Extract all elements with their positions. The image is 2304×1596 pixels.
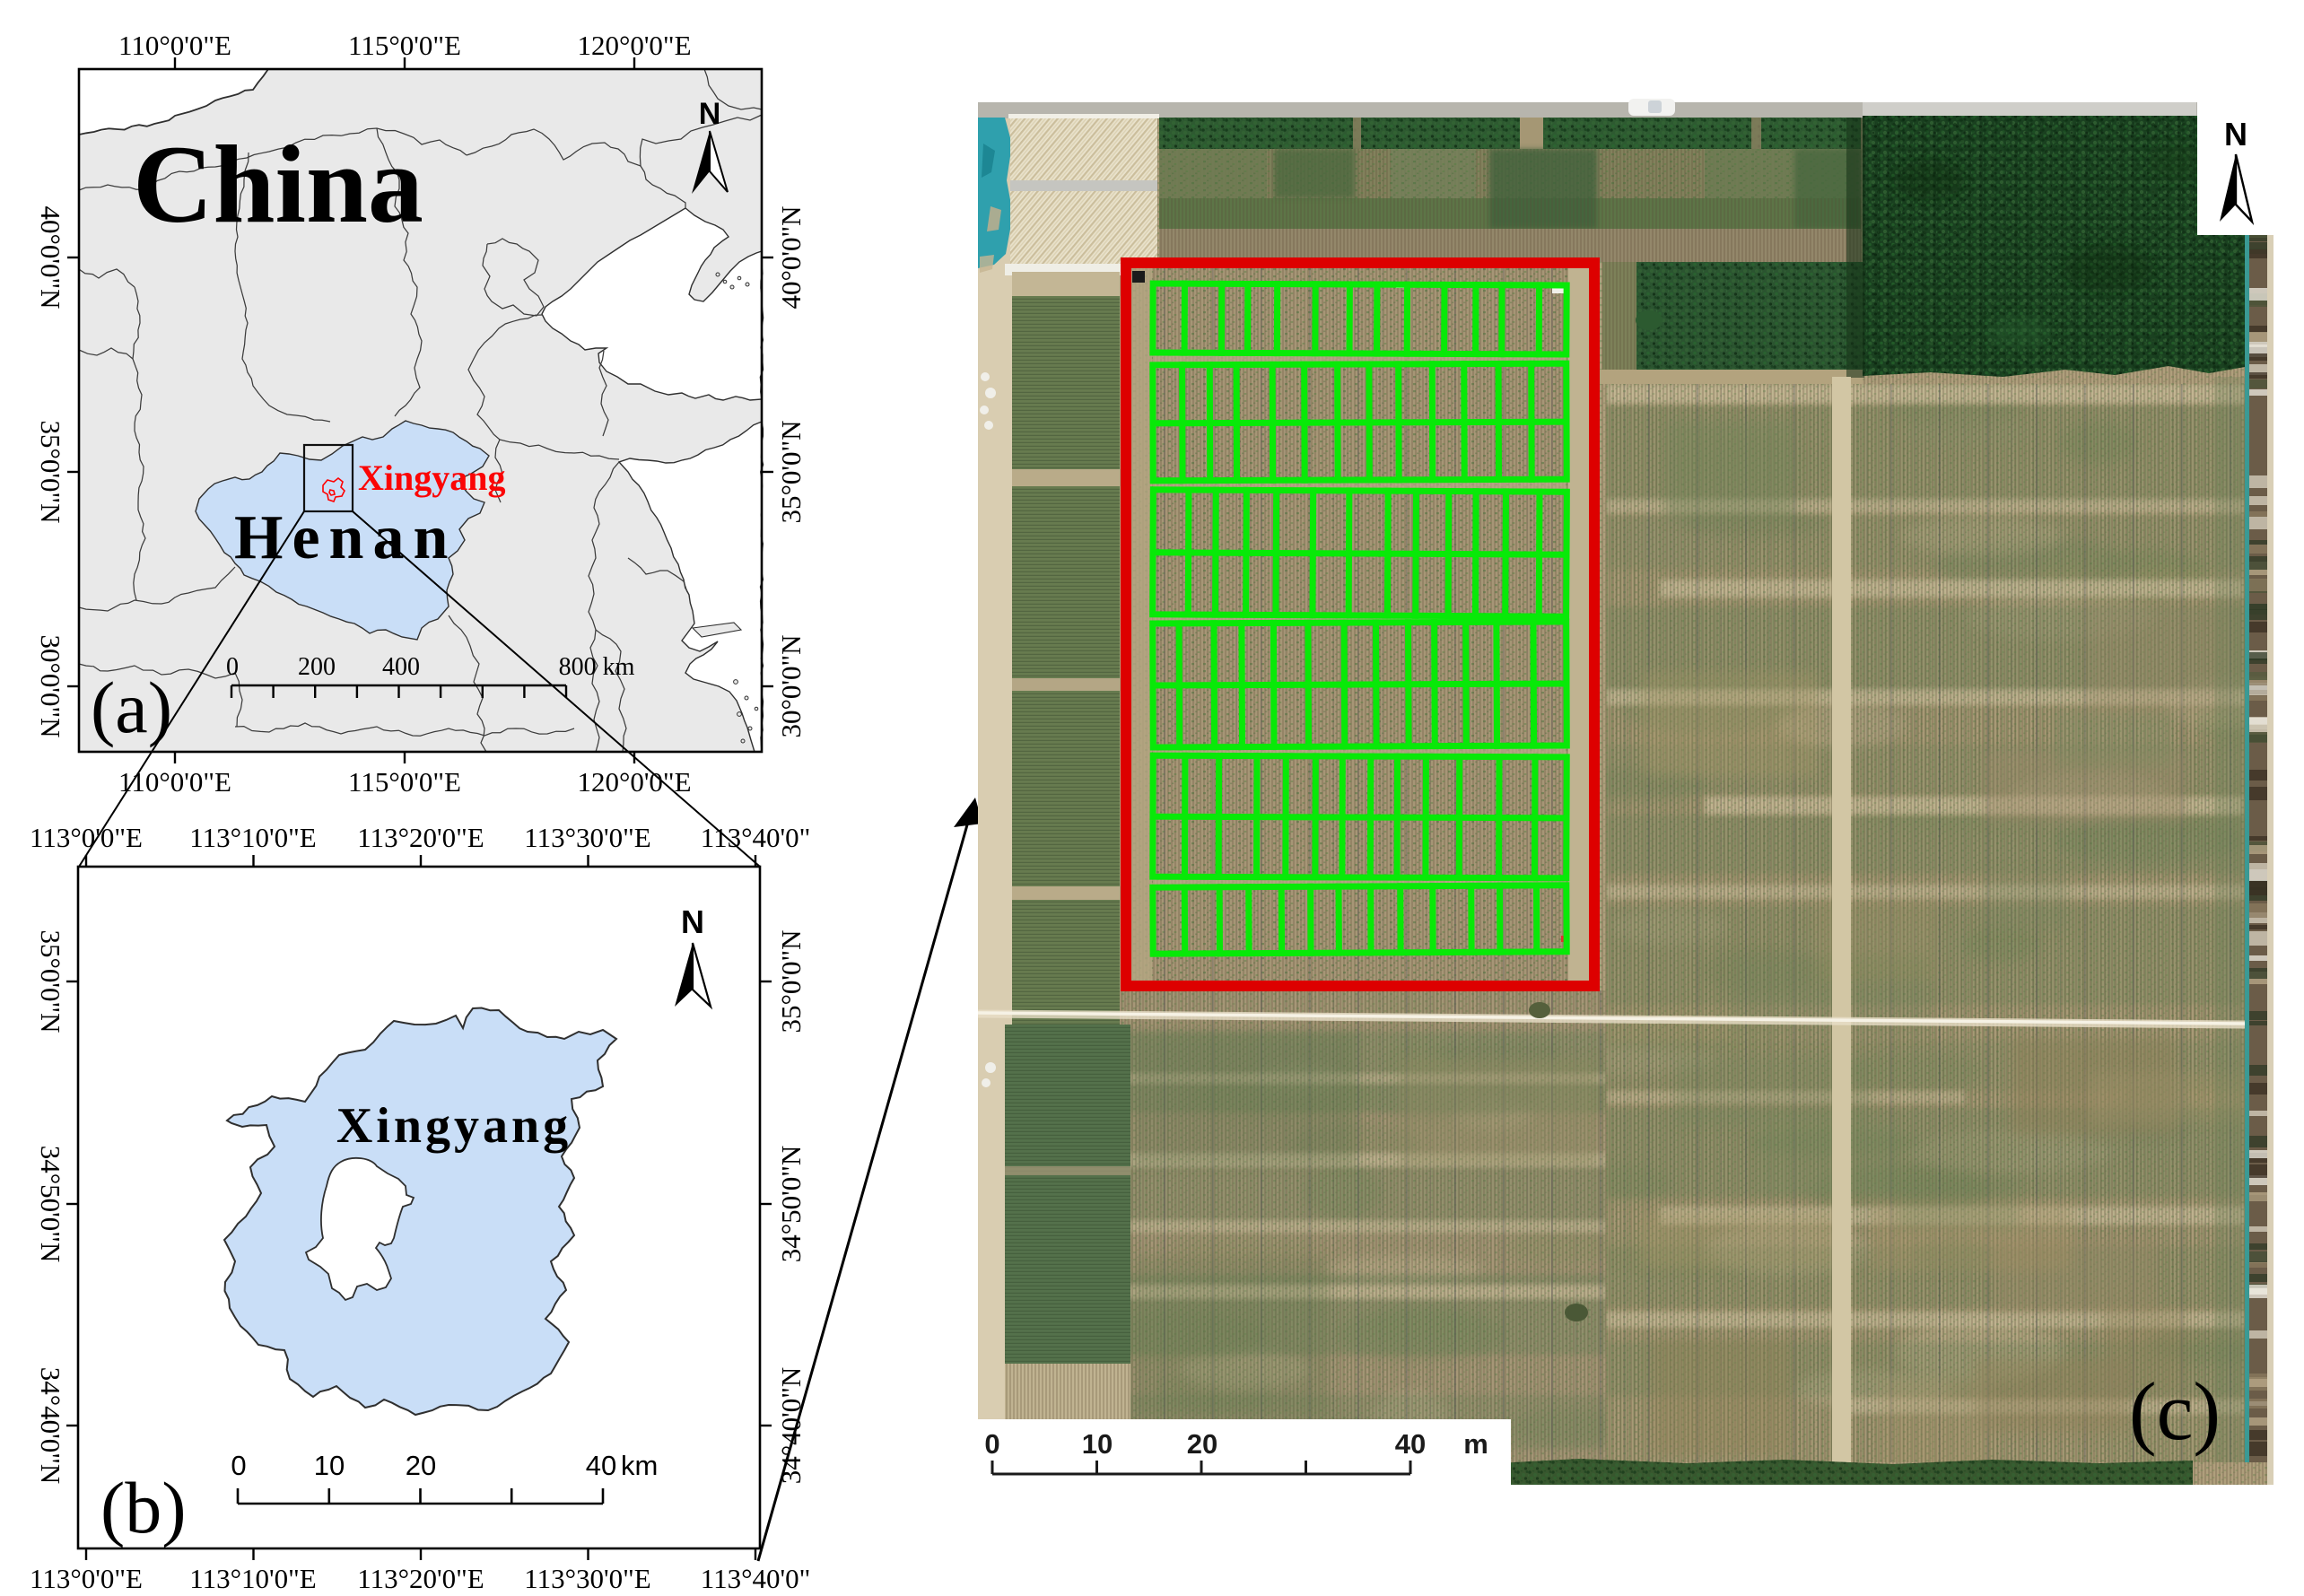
svg-text:30°0'0"N: 30°0'0"N	[35, 634, 66, 737]
svg-text:113°30'0"E: 113°30'0"E	[524, 822, 650, 853]
svg-text:113°20'0"E: 113°20'0"E	[357, 822, 484, 853]
svg-text:113°40'0": 113°40'0"	[701, 1563, 811, 1594]
svg-text:40°0'0"N: 40°0'0"N	[35, 205, 66, 309]
svg-text:35°0'0"N: 35°0'0"N	[35, 929, 66, 1033]
svg-text:110°0'0"E: 110°0'0"E	[118, 30, 231, 61]
svg-text:113°30'0"E: 113°30'0"E	[524, 1563, 650, 1594]
svg-text:35°0'0"N: 35°0'0"N	[35, 420, 66, 523]
svg-text:N: N	[2224, 116, 2247, 153]
svg-text:40: 40	[1395, 1428, 1426, 1460]
svg-text:N: N	[699, 97, 721, 131]
svg-text:113°20'0"E: 113°20'0"E	[357, 1563, 484, 1594]
svg-text:113°40'0": 113°40'0"	[701, 822, 811, 853]
svg-text:34°50'0"N: 34°50'0"N	[35, 1146, 66, 1263]
svg-text:35°0'0"N: 35°0'0"N	[775, 420, 807, 523]
svg-text:(b): (b)	[100, 1467, 187, 1548]
svg-text:110°0'0"E: 110°0'0"E	[118, 766, 231, 798]
svg-text:0: 0	[984, 1428, 999, 1460]
svg-text:20: 20	[1187, 1428, 1217, 1460]
svg-text:(a): (a)	[91, 667, 172, 748]
svg-text:34°50'0"N: 34°50'0"N	[775, 1146, 807, 1263]
svg-text:10: 10	[1082, 1428, 1113, 1460]
svg-text:10: 10	[314, 1450, 345, 1481]
svg-text:115°0'0"E: 115°0'0"E	[348, 766, 461, 798]
svg-text:400: 400	[382, 653, 420, 681]
svg-text:N: N	[681, 903, 704, 940]
svg-text:113°10'0"E: 113°10'0"E	[189, 1563, 316, 1594]
svg-text:113°0'0"E: 113°0'0"E	[30, 1563, 143, 1594]
svg-text:0: 0	[231, 1450, 246, 1481]
svg-text:China: China	[133, 123, 423, 246]
svg-text:113°0'0"E: 113°0'0"E	[30, 822, 143, 853]
svg-text:Xingyang: Xingyang	[358, 458, 506, 498]
svg-text:113°10'0"E: 113°10'0"E	[189, 822, 316, 853]
svg-text:34°40'0"N: 34°40'0"N	[35, 1367, 66, 1485]
svg-text:30°0'0"N: 30°0'0"N	[775, 634, 807, 737]
svg-text:115°0'0"E: 115°0'0"E	[348, 30, 461, 61]
svg-text:Henan: Henan	[234, 503, 457, 572]
svg-text:Xingyang: Xingyang	[336, 1098, 572, 1154]
svg-text:0: 0	[226, 653, 239, 681]
svg-text:200: 200	[298, 653, 336, 681]
svg-text:km: km	[621, 1450, 658, 1481]
svg-text:35°0'0"N: 35°0'0"N	[775, 929, 807, 1033]
svg-text:40°0'0"N: 40°0'0"N	[775, 205, 807, 309]
svg-text:34°40'0"N: 34°40'0"N	[775, 1367, 807, 1485]
svg-text:120°0'0"E: 120°0'0"E	[577, 30, 691, 61]
svg-text:m: m	[1463, 1428, 1488, 1460]
svg-text:800 km: 800 km	[559, 653, 635, 681]
svg-text:20: 20	[406, 1450, 436, 1481]
svg-text:40: 40	[586, 1450, 616, 1481]
svg-text:(c): (c)	[2129, 1365, 2221, 1457]
